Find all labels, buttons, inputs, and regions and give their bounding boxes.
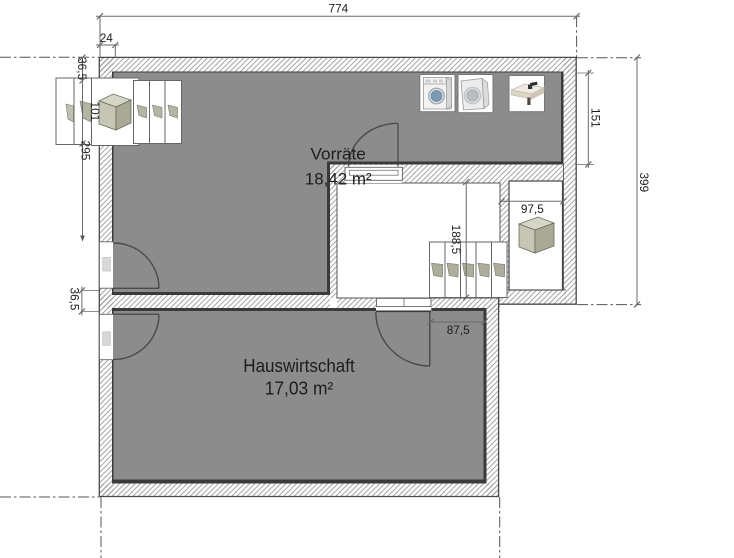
svg-text:101: 101	[88, 102, 102, 122]
svg-text:36,5: 36,5	[75, 57, 89, 80]
svg-text:87,5: 87,5	[447, 323, 470, 337]
svg-text:18,42 m²: 18,42 m²	[305, 170, 372, 189]
svg-text:24: 24	[100, 31, 114, 45]
svg-text:399: 399	[637, 172, 651, 192]
svg-text:17,03 m²: 17,03 m²	[265, 379, 334, 399]
svg-text:188,5: 188,5	[449, 225, 463, 255]
svg-text:295: 295	[79, 141, 93, 161]
svg-text:774: 774	[329, 2, 349, 16]
svg-text:Vorräte: Vorräte	[311, 145, 366, 164]
svg-text:151: 151	[589, 108, 603, 128]
svg-text:97,5: 97,5	[521, 202, 544, 216]
svg-text:36,5: 36,5	[68, 288, 82, 311]
svg-text:Hauswirtschaft: Hauswirtschaft	[243, 356, 354, 376]
